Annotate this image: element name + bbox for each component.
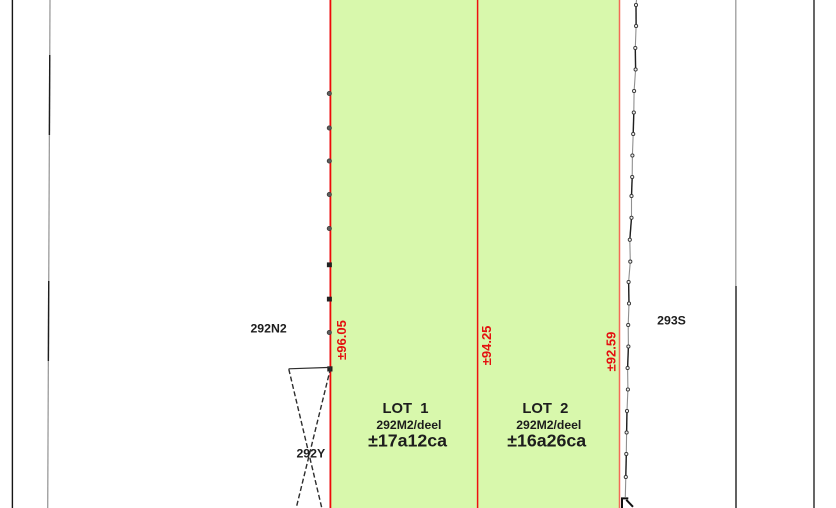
svg-text:±16a26ca: ±16a26ca xyxy=(507,431,586,451)
svg-text:293S: 293S xyxy=(657,314,686,328)
svg-text:±92.59: ±92.59 xyxy=(603,332,618,372)
svg-text:±17a12ca: ±17a12ca xyxy=(368,431,447,451)
svg-text:±94.25: ±94.25 xyxy=(479,326,494,366)
svg-text:292Y: 292Y xyxy=(296,446,325,460)
svg-text:LOT 2: LOT 2 xyxy=(522,401,568,417)
svg-text:±96.05: ±96.05 xyxy=(334,320,349,360)
svg-text:LOT 1: LOT 1 xyxy=(382,401,428,417)
svg-text:292N2: 292N2 xyxy=(250,322,286,336)
